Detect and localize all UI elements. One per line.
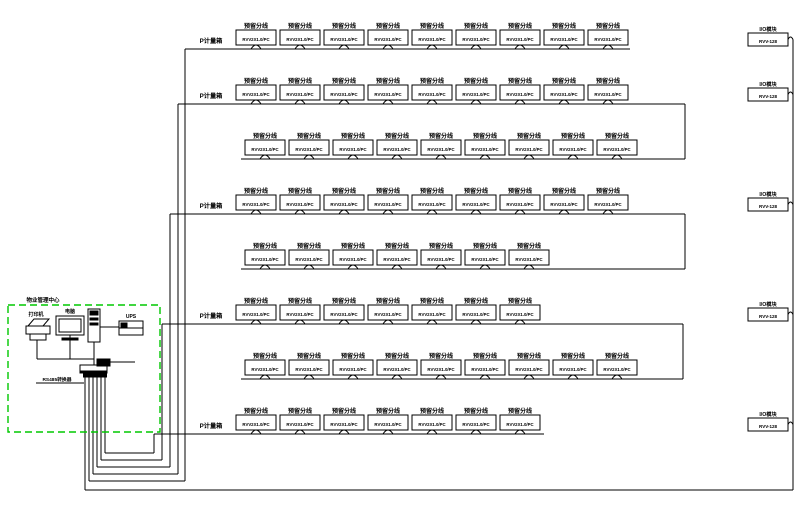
- branch-hook: [348, 155, 358, 159]
- meter-box-model: RVV2X1.0/PC: [418, 37, 445, 42]
- branch-hook: [515, 100, 525, 104]
- io-module-hook: [788, 92, 793, 95]
- ups-icon: [121, 323, 127, 327]
- meter-box-model: RVV2X1.0/PC: [295, 367, 322, 372]
- branch-hook: [612, 155, 622, 159]
- meter-branch-label: 预留分线: [605, 132, 629, 140]
- branch-hook: [480, 375, 490, 379]
- meter-branch-label: 预留分线: [517, 352, 541, 360]
- meter-box-model: RVV2X1.0/PC: [471, 257, 498, 262]
- meter-box-model: RVV2X1.0/PC: [295, 147, 322, 152]
- meter-branch-label: 预留分线: [297, 132, 321, 140]
- meter-branch-label: 预留分线: [508, 187, 532, 195]
- meter-branch-label: 预留分线: [332, 297, 356, 305]
- meter-box-model: RVV2X1.0/PC: [594, 202, 621, 207]
- meter-branch-label: 预留分线: [464, 77, 488, 85]
- branch-hook: [524, 155, 534, 159]
- meter-box-model: RVV2X1.0/PC: [506, 422, 533, 427]
- meter-box-model: RVV2X1.0/PC: [515, 147, 542, 152]
- branch-hook: [383, 210, 393, 214]
- meter-branch-label: 预留分线: [429, 352, 453, 360]
- meter-branch-label: 预留分线: [561, 352, 585, 360]
- wiring-diagram: 预留分线RVV2X1.0/PC预留分线RVV2X1.0/PC预留分线RVV2X1…: [0, 0, 808, 506]
- meter-box-model: RVV2X1.0/PC: [251, 257, 278, 262]
- meter-box-model: RVV2X1.0/PC: [286, 37, 313, 42]
- branch-hook: [515, 430, 525, 434]
- branch-hook: [612, 375, 622, 379]
- meter-box-model: RVV2X1.0/PC: [374, 92, 401, 97]
- branch-hook: [339, 430, 349, 434]
- branch-hook: [524, 375, 534, 379]
- meter-box-model: RVV2X1.0/PC: [550, 37, 577, 42]
- meter-box-model: RVV2X1.0/PC: [330, 312, 357, 317]
- printer-icon: [30, 334, 46, 340]
- meter-box-model: RVV2X1.0/PC: [462, 312, 489, 317]
- branch-hook: [603, 45, 613, 49]
- branch-hook: [559, 210, 569, 214]
- meter-branch-label: 预留分线: [244, 187, 268, 195]
- meter-box-model: RVV2X1.0/PC: [506, 92, 533, 97]
- meter-box-model: RVV2X1.0/PC: [559, 147, 586, 152]
- branch-hook: [304, 375, 314, 379]
- meter-box-model: RVV2X1.0/PC: [594, 92, 621, 97]
- meter-branch-label: 预留分线: [508, 22, 532, 30]
- branch-hook: [251, 210, 261, 214]
- meter-box-model: RVV2X1.0/PC: [471, 147, 498, 152]
- converter-label: RS485转换器: [42, 376, 71, 383]
- meter-box-model: RVV2X1.0/PC: [462, 422, 489, 427]
- meter-branch-label: 预留分线: [341, 352, 365, 360]
- meter-box-model: RVV2X1.0/PC: [330, 92, 357, 97]
- meter-branch-label: 预留分线: [376, 22, 400, 30]
- meter-box-model: RVV2X1.0/PC: [374, 312, 401, 317]
- meter-box-model: RVV2X1.0/PC: [418, 312, 445, 317]
- meter-box-model: RVV2X1.0/PC: [603, 147, 630, 152]
- io-module-label: I/O模块: [759, 80, 777, 88]
- io-module-label: I/O模块: [759, 300, 777, 308]
- branch-hook: [251, 100, 261, 104]
- meter-branch-label: 预留分线: [429, 132, 453, 140]
- meter-branch-label: 预留分线: [253, 132, 277, 140]
- branch-hook: [471, 210, 481, 214]
- io-module-model: RVV-128: [759, 204, 777, 209]
- io-module-model: RVV-128: [759, 39, 777, 44]
- branch-hook: [251, 320, 261, 324]
- computer-monitor-icon: [59, 319, 81, 332]
- branch-hook: [260, 155, 270, 159]
- branch-hook: [260, 375, 270, 379]
- branch-hook: [515, 210, 525, 214]
- printer-label: 打印机: [28, 311, 43, 318]
- meter-box-model: RVV2X1.0/PC: [383, 257, 410, 262]
- meter-box-model: RVV2X1.0/PC: [242, 422, 269, 427]
- branch-hook: [427, 210, 437, 214]
- meter-branch-label: 预留分线: [420, 187, 444, 195]
- branch-hook: [295, 320, 305, 324]
- branch-hook: [559, 100, 569, 104]
- branch-hook: [348, 265, 358, 269]
- meter-branch-label: 预留分线: [385, 352, 409, 360]
- ups-label: UPS: [126, 314, 137, 320]
- branch-hook: [568, 155, 578, 159]
- branch-hook: [295, 45, 305, 49]
- meter-branch-label: 预留分线: [244, 77, 268, 85]
- meter-branch-label: 预留分线: [420, 22, 444, 30]
- meter-branch-label: 预留分线: [517, 132, 541, 140]
- meter-box-model: RVV2X1.0/PC: [251, 147, 278, 152]
- branch-hook: [383, 45, 393, 49]
- converter-terminal: [96, 373, 99, 377]
- meter-branch-label: 预留分线: [385, 132, 409, 140]
- meter-branch-label: 预留分线: [552, 187, 576, 195]
- meter-box-model: RVV2X1.0/PC: [251, 367, 278, 372]
- meter-branch-label: 预留分线: [288, 297, 312, 305]
- meter-box-model: RVV2X1.0/PC: [374, 37, 401, 42]
- meter-branch-label: 预留分线: [464, 407, 488, 415]
- meter-branch-label: 预留分线: [297, 242, 321, 250]
- meter-branch-label: 预留分线: [332, 187, 356, 195]
- io-module-hook: [788, 37, 793, 40]
- meter-box-model: RVV2X1.0/PC: [462, 37, 489, 42]
- printer-icon: [28, 319, 49, 326]
- meter-branch-label: 预留分线: [464, 297, 488, 305]
- meter-branch-label: 预留分线: [244, 297, 268, 305]
- branch-hook: [480, 265, 490, 269]
- meter-branch-label: 预留分线: [341, 242, 365, 250]
- meter-box-model: RVV2X1.0/PC: [506, 37, 533, 42]
- branch-hook: [436, 155, 446, 159]
- branch-hook: [251, 430, 261, 434]
- meter-branch-label: 预留分线: [332, 22, 356, 30]
- meter-box-model: RVV2X1.0/PC: [330, 37, 357, 42]
- meter-branch-label: 预留分线: [376, 187, 400, 195]
- io-module-model: RVV-128: [759, 424, 777, 429]
- meter-branch-label: 预留分线: [420, 407, 444, 415]
- branch-hook: [295, 430, 305, 434]
- meter-branch-label: 预留分线: [253, 352, 277, 360]
- branch-hook: [427, 100, 437, 104]
- branch-hook: [392, 375, 402, 379]
- meter-branch-label: 预留分线: [596, 77, 620, 85]
- wiring-diagram-canvas: 预留分线RVV2X1.0/PC预留分线RVV2X1.0/PC预留分线RVV2X1…: [0, 0, 808, 506]
- meter-branch-label: 预留分线: [253, 242, 277, 250]
- branch-hook: [392, 265, 402, 269]
- meter-branch-label: 预留分线: [552, 77, 576, 85]
- meter-box-model: RVV2X1.0/PC: [286, 422, 313, 427]
- meter-box-model: RVV2X1.0/PC: [462, 92, 489, 97]
- meter-branch-label: 预留分线: [288, 407, 312, 415]
- converter-terminal: [104, 373, 107, 377]
- meter-branch-label: 预留分线: [297, 352, 321, 360]
- branch-hook: [436, 375, 446, 379]
- row-label: P计量箱: [200, 92, 223, 100]
- meter-box-model: RVV2X1.0/PC: [550, 202, 577, 207]
- meter-branch-label: 预留分线: [473, 352, 497, 360]
- meter-box-model: RVV2X1.0/PC: [286, 202, 313, 207]
- meter-branch-label: 预留分线: [429, 242, 453, 250]
- branch-hook: [471, 320, 481, 324]
- branch-hook: [515, 45, 525, 49]
- branch-hook: [603, 210, 613, 214]
- meter-box-model: RVV2X1.0/PC: [594, 37, 621, 42]
- converter-icon: [97, 359, 110, 366]
- row-label: P计量箱: [200, 202, 223, 210]
- io-module-hook: [788, 202, 793, 205]
- meter-box-model: RVV2X1.0/PC: [418, 202, 445, 207]
- meter-branch-label: 预留分线: [244, 407, 268, 415]
- meter-branch-label: 预留分线: [332, 77, 356, 85]
- converter-terminal: [88, 373, 91, 377]
- branch-hook: [471, 45, 481, 49]
- branch-hook: [339, 210, 349, 214]
- meter-branch-label: 预留分线: [508, 407, 532, 415]
- branch-hook: [304, 265, 314, 269]
- meter-box-model: RVV2X1.0/PC: [286, 312, 313, 317]
- meter-box-model: RVV2X1.0/PC: [242, 37, 269, 42]
- branch-hook: [480, 155, 490, 159]
- branch-hook: [295, 210, 305, 214]
- pc-tower-icon: [90, 311, 98, 315]
- control-room-title: 物业管理中心: [26, 296, 60, 304]
- meter-branch-label: 预留分线: [341, 132, 365, 140]
- branch-hook: [427, 430, 437, 434]
- branch-hook: [339, 320, 349, 324]
- branch-hook: [295, 100, 305, 104]
- branch-hook: [427, 45, 437, 49]
- meter-box-model: RVV2X1.0/PC: [515, 367, 542, 372]
- meter-branch-label: 预留分线: [288, 187, 312, 195]
- meter-box-model: RVV2X1.0/PC: [418, 422, 445, 427]
- meter-branch-label: 预留分线: [596, 187, 620, 195]
- branch-hook: [339, 100, 349, 104]
- meter-box-model: RVV2X1.0/PC: [330, 202, 357, 207]
- meter-box-model: RVV2X1.0/PC: [339, 257, 366, 262]
- meter-box-model: RVV2X1.0/PC: [515, 257, 542, 262]
- io-module-label: I/O模块: [759, 25, 777, 33]
- meter-box-model: RVV2X1.0/PC: [242, 92, 269, 97]
- branch-hook: [603, 100, 613, 104]
- converter-terminal: [100, 373, 103, 377]
- io-module-hook: [788, 312, 793, 315]
- io-module-model: RVV-128: [759, 94, 777, 99]
- meter-branch-label: 预留分线: [552, 22, 576, 30]
- branch-hook: [251, 45, 261, 49]
- meter-branch-label: 预留分线: [464, 22, 488, 30]
- branch-hook: [383, 100, 393, 104]
- row-label: P计量箱: [200, 37, 223, 45]
- branch-hook: [568, 375, 578, 379]
- printer-icon: [26, 326, 50, 334]
- meter-box-model: RVV2X1.0/PC: [330, 422, 357, 427]
- meter-box-model: RVV2X1.0/PC: [550, 92, 577, 97]
- pc-tower-icon: [90, 323, 98, 325]
- meter-box-model: RVV2X1.0/PC: [462, 202, 489, 207]
- branch-hook: [392, 155, 402, 159]
- branch-hook: [471, 100, 481, 104]
- meter-box-model: RVV2X1.0/PC: [286, 92, 313, 97]
- meter-box-model: RVV2X1.0/PC: [242, 202, 269, 207]
- io-module-label: I/O模块: [759, 190, 777, 198]
- meter-branch-label: 预留分线: [605, 352, 629, 360]
- meter-box-model: RVV2X1.0/PC: [506, 312, 533, 317]
- meter-branch-label: 预留分线: [473, 132, 497, 140]
- row-label: P计量箱: [200, 422, 223, 430]
- meter-box-model: RVV2X1.0/PC: [427, 147, 454, 152]
- meter-branch-label: 预留分线: [376, 77, 400, 85]
- meter-box-model: RVV2X1.0/PC: [471, 367, 498, 372]
- branch-hook: [304, 155, 314, 159]
- branch-hook: [427, 320, 437, 324]
- branch-hook: [260, 265, 270, 269]
- io-module-label: I/O模块: [759, 410, 777, 418]
- meter-branch-label: 预留分线: [473, 242, 497, 250]
- branch-hook: [524, 265, 534, 269]
- meter-branch-label: 预留分线: [420, 297, 444, 305]
- branch-hook: [339, 45, 349, 49]
- converter-terminal: [84, 373, 87, 377]
- meter-box-model: RVV2X1.0/PC: [603, 367, 630, 372]
- meter-box-model: RVV2X1.0/PC: [383, 147, 410, 152]
- branch-hook: [348, 375, 358, 379]
- meter-box-model: RVV2X1.0/PC: [383, 367, 410, 372]
- meter-branch-label: 预留分线: [288, 22, 312, 30]
- meter-box-model: RVV2X1.0/PC: [374, 202, 401, 207]
- branch-hook: [436, 265, 446, 269]
- computer-monitor-base: [62, 338, 78, 340]
- meter-box-model: RVV2X1.0/PC: [339, 367, 366, 372]
- meter-branch-label: 预留分线: [376, 297, 400, 305]
- branch-hook: [383, 320, 393, 324]
- meter-branch-label: 预留分线: [596, 22, 620, 30]
- meter-box-model: RVV2X1.0/PC: [427, 367, 454, 372]
- meter-box-model: RVV2X1.0/PC: [242, 312, 269, 317]
- pc-tower-icon: [90, 318, 98, 320]
- meter-box-model: RVV2X1.0/PC: [506, 202, 533, 207]
- meter-box-model: RVV2X1.0/PC: [559, 367, 586, 372]
- io-module-hook: [788, 422, 793, 425]
- io-module-model: RVV-128: [759, 314, 777, 319]
- meter-box-model: RVV2X1.0/PC: [295, 257, 322, 262]
- meter-branch-label: 预留分线: [517, 242, 541, 250]
- meter-box-model: RVV2X1.0/PC: [374, 422, 401, 427]
- branch-hook: [383, 430, 393, 434]
- converter-terminal: [92, 373, 95, 377]
- meter-branch-label: 预留分线: [288, 77, 312, 85]
- meter-branch-label: 预留分线: [376, 407, 400, 415]
- meter-branch-label: 预留分线: [420, 77, 444, 85]
- meter-box-model: RVV2X1.0/PC: [427, 257, 454, 262]
- meter-branch-label: 预留分线: [508, 77, 532, 85]
- meter-branch-label: 预留分线: [385, 242, 409, 250]
- row-label: P计量箱: [200, 312, 223, 320]
- computer-label: 电脑: [65, 308, 75, 315]
- branch-hook: [515, 320, 525, 324]
- meter-branch-label: 预留分线: [464, 187, 488, 195]
- branch-hook: [471, 430, 481, 434]
- meter-box-model: RVV2X1.0/PC: [339, 147, 366, 152]
- meter-box-model: RVV2X1.0/PC: [418, 92, 445, 97]
- meter-branch-label: 预留分线: [244, 22, 268, 30]
- meter-branch-label: 预留分线: [508, 297, 532, 305]
- branch-hook: [559, 45, 569, 49]
- meter-branch-label: 预留分线: [561, 132, 585, 140]
- meter-branch-label: 预留分线: [332, 407, 356, 415]
